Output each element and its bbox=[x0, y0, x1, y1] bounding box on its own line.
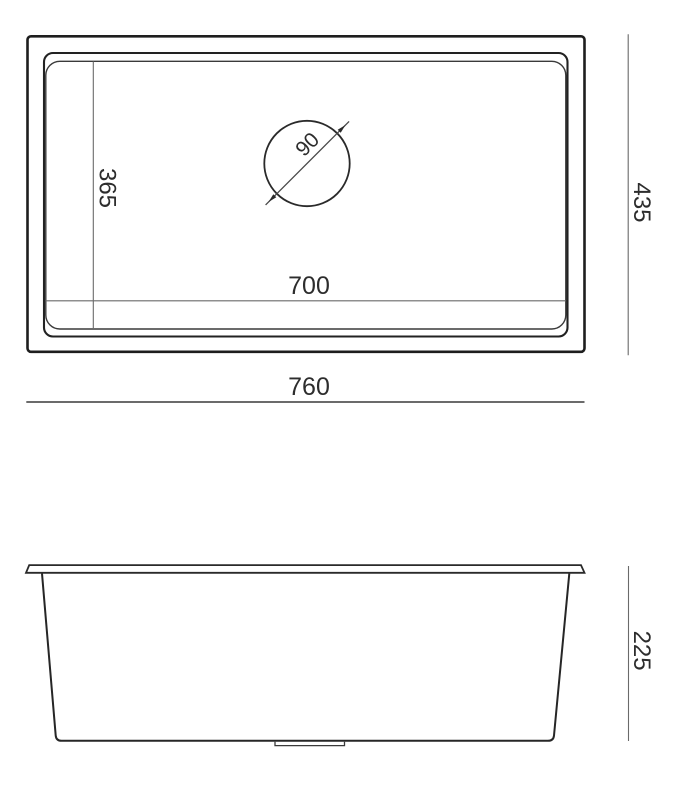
svg-text:225: 225 bbox=[628, 631, 655, 671]
svg-text:435: 435 bbox=[628, 182, 655, 222]
svg-text:700: 700 bbox=[288, 272, 330, 300]
svg-text:90: 90 bbox=[291, 128, 324, 161]
svg-text:760: 760 bbox=[288, 373, 330, 401]
svg-text:365: 365 bbox=[93, 168, 120, 208]
